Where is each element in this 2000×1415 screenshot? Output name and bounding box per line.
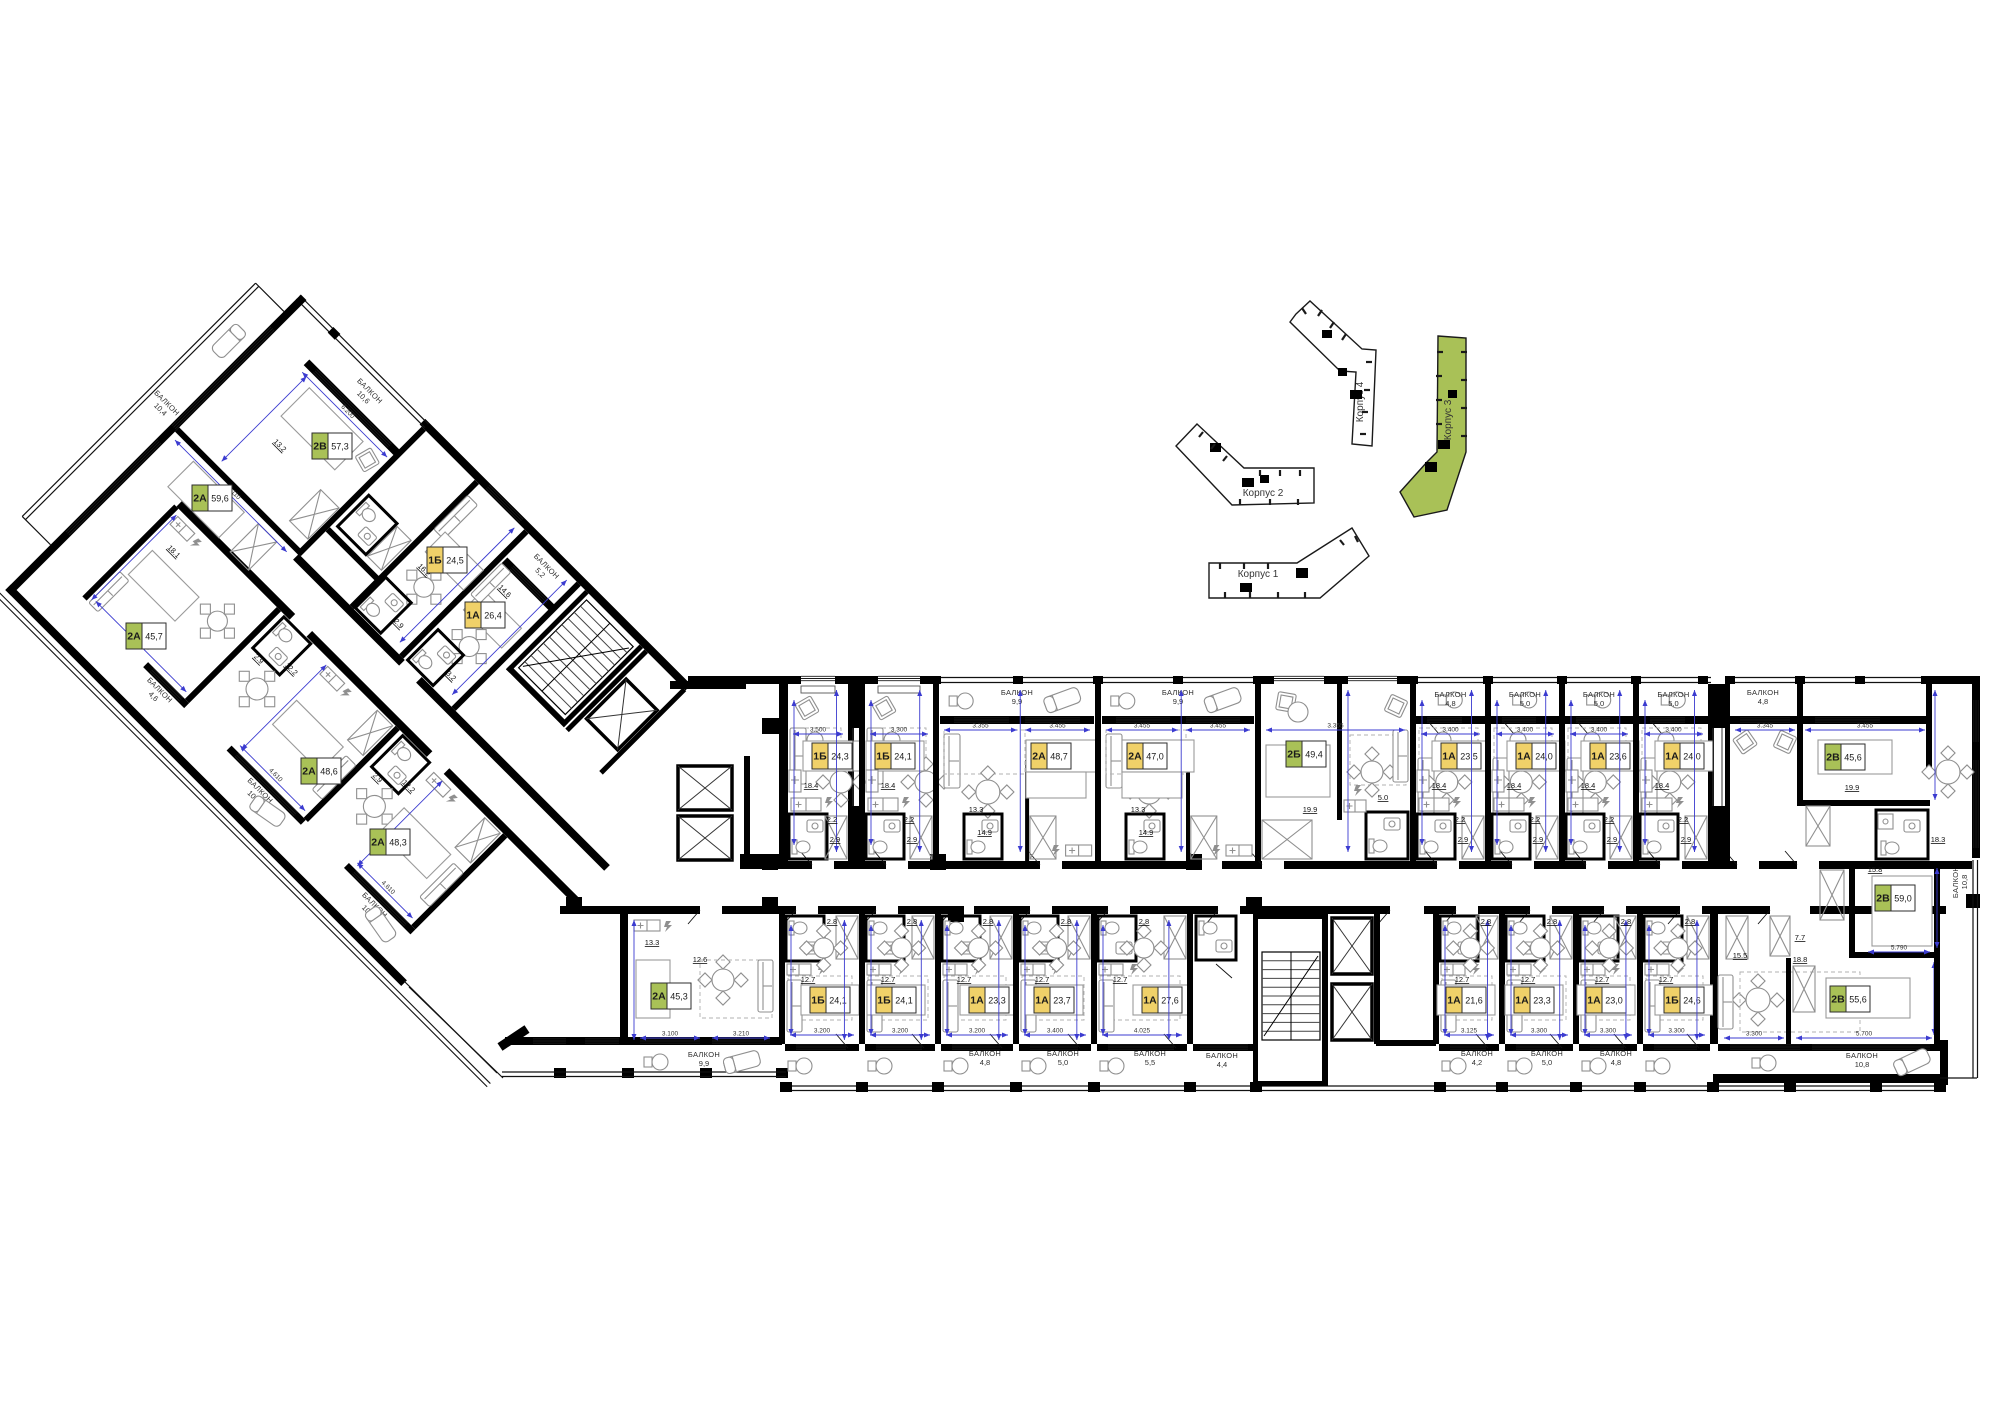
svg-text:БАЛКОН: БАЛКОН xyxy=(1047,1049,1079,1058)
svg-text:12.7: 12.7 xyxy=(1595,975,1610,984)
svg-text:48,6: 48,6 xyxy=(320,767,338,777)
svg-text:1А: 1А xyxy=(1515,995,1529,1007)
svg-text:13.3: 13.3 xyxy=(645,938,660,947)
svg-text:19.9: 19.9 xyxy=(1303,805,1318,814)
svg-text:24,1: 24,1 xyxy=(894,752,912,762)
svg-text:49,4: 49,4 xyxy=(1305,750,1323,760)
svg-text:21,6: 21,6 xyxy=(1465,996,1483,1006)
svg-text:БАЛКОН: БАЛКОН xyxy=(1206,1051,1238,1060)
svg-text:1А: 1А xyxy=(1035,995,1049,1007)
svg-text:БАЛКОН: БАЛКОН xyxy=(1583,690,1615,699)
svg-text:12.6: 12.6 xyxy=(693,955,708,964)
svg-text:5,0: 5,0 xyxy=(1520,699,1530,708)
svg-text:3.210: 3.210 xyxy=(733,1031,750,1038)
svg-text:18.8: 18.8 xyxy=(1793,955,1808,964)
svg-text:3.200: 3.200 xyxy=(892,1028,909,1035)
svg-text:24,0: 24,0 xyxy=(1683,752,1701,762)
svg-text:12.7: 12.7 xyxy=(1521,975,1536,984)
svg-text:2.2: 2.2 xyxy=(1604,815,1614,824)
svg-text:24,5: 24,5 xyxy=(446,556,464,566)
svg-text:2.9: 2.9 xyxy=(1458,835,1468,844)
svg-text:БАЛКОН: БАЛКОН xyxy=(1846,1051,1878,1060)
svg-text:5.700: 5.700 xyxy=(1856,1031,1873,1038)
svg-text:3.455: 3.455 xyxy=(1210,723,1227,730)
svg-text:1А: 1А xyxy=(1591,751,1605,763)
svg-text:БАЛКОН: БАЛКОН xyxy=(1162,688,1194,697)
svg-text:2.9: 2.9 xyxy=(1533,835,1543,844)
svg-text:2.8: 2.8 xyxy=(827,917,837,926)
svg-text:2.9: 2.9 xyxy=(1681,835,1691,844)
svg-text:3.300: 3.300 xyxy=(1600,1028,1617,1035)
svg-text:1А: 1А xyxy=(1442,751,1456,763)
svg-text:23,0: 23,0 xyxy=(1605,996,1623,1006)
svg-text:4,2: 4,2 xyxy=(1472,1058,1482,1067)
svg-text:12.7: 12.7 xyxy=(1035,975,1050,984)
svg-text:2.8: 2.8 xyxy=(1139,917,1149,926)
svg-text:2.8: 2.8 xyxy=(1481,917,1491,926)
svg-text:5,0: 5,0 xyxy=(1058,1058,1068,1067)
svg-text:10,8: 10,8 xyxy=(1960,875,1969,890)
svg-text:БАЛКОН: БАЛКОН xyxy=(1657,690,1689,699)
svg-text:18.4: 18.4 xyxy=(1581,781,1596,790)
svg-text:2.8: 2.8 xyxy=(1061,917,1071,926)
svg-text:2.9: 2.9 xyxy=(907,835,917,844)
svg-text:5,5: 5,5 xyxy=(1145,1058,1155,1067)
svg-text:23,5: 23,5 xyxy=(1460,752,1478,762)
svg-text:2А: 2А xyxy=(652,991,666,1003)
svg-text:1А: 1А xyxy=(970,995,984,1007)
svg-text:1А: 1А xyxy=(1143,995,1157,1007)
svg-text:13.3: 13.3 xyxy=(969,805,984,814)
svg-text:12.7: 12.7 xyxy=(1113,975,1128,984)
svg-text:3.355: 3.355 xyxy=(1327,723,1344,730)
svg-text:4,4: 4,4 xyxy=(1217,1060,1227,1069)
svg-text:48,3: 48,3 xyxy=(389,838,407,848)
svg-text:1Б: 1Б xyxy=(428,555,442,567)
svg-text:4,8: 4,8 xyxy=(1758,697,1768,706)
svg-text:5.0: 5.0 xyxy=(1378,793,1388,802)
svg-text:2.8: 2.8 xyxy=(1547,917,1557,926)
svg-text:2.2: 2.2 xyxy=(827,815,837,824)
svg-text:57,3: 57,3 xyxy=(331,442,349,452)
svg-text:БАЛКОН: БАЛКОН xyxy=(1461,1049,1493,1058)
svg-text:БАЛКОН: БАЛКОН xyxy=(1001,688,1033,697)
svg-text:1Б: 1Б xyxy=(877,995,891,1007)
svg-text:3.300: 3.300 xyxy=(891,727,908,734)
svg-text:18.4: 18.4 xyxy=(1655,781,1670,790)
svg-text:2.8: 2.8 xyxy=(1685,917,1695,926)
svg-text:12.7: 12.7 xyxy=(957,975,972,984)
svg-text:4.025: 4.025 xyxy=(1134,1028,1151,1035)
svg-text:1Б: 1Б xyxy=(1665,995,1679,1007)
svg-text:2Б: 2Б xyxy=(1287,749,1301,761)
svg-text:2В: 2В xyxy=(1876,893,1890,905)
svg-text:47,0: 47,0 xyxy=(1146,752,1164,762)
svg-text:5,0: 5,0 xyxy=(1668,699,1678,708)
svg-text:55,6: 55,6 xyxy=(1849,995,1867,1005)
svg-text:2А: 2А xyxy=(193,493,207,505)
svg-text:4,8: 4,8 xyxy=(980,1058,990,1067)
svg-text:2.9: 2.9 xyxy=(1607,835,1617,844)
svg-text:23,7: 23,7 xyxy=(1053,996,1071,1006)
svg-text:3.455: 3.455 xyxy=(1857,723,1874,730)
svg-text:3.400: 3.400 xyxy=(1665,727,1682,734)
svg-text:59,0: 59,0 xyxy=(1894,894,1912,904)
svg-text:24,6: 24,6 xyxy=(1683,996,1701,1006)
svg-text:5,0: 5,0 xyxy=(1594,699,1604,708)
svg-text:БАЛКОН: БАЛКОН xyxy=(1600,1049,1632,1058)
svg-text:2В: 2В xyxy=(313,441,327,453)
svg-text:1А: 1А xyxy=(1665,751,1679,763)
svg-text:9,9: 9,9 xyxy=(1173,697,1183,706)
svg-text:45,3: 45,3 xyxy=(670,992,688,1002)
svg-text:Корпус 1: Корпус 1 xyxy=(1238,569,1279,580)
svg-text:23,6: 23,6 xyxy=(1609,752,1627,762)
svg-text:2.8: 2.8 xyxy=(907,917,917,926)
svg-text:23,3: 23,3 xyxy=(1533,996,1551,1006)
svg-text:2.9: 2.9 xyxy=(830,835,840,844)
svg-text:Корпус 2: Корпус 2 xyxy=(1243,488,1284,499)
svg-text:2.8: 2.8 xyxy=(983,917,993,926)
svg-text:24,0: 24,0 xyxy=(1535,752,1553,762)
svg-text:45,6: 45,6 xyxy=(1844,753,1862,763)
svg-text:3.200: 3.200 xyxy=(969,1028,986,1035)
svg-text:2.2: 2.2 xyxy=(1530,815,1540,824)
svg-text:12.7: 12.7 xyxy=(801,975,816,984)
svg-text:БАЛКОН: БАЛКОН xyxy=(1747,688,1779,697)
svg-text:45,7: 45,7 xyxy=(145,632,163,642)
svg-text:23,3: 23,3 xyxy=(988,996,1006,1006)
svg-text:1А: 1А xyxy=(1447,995,1461,1007)
svg-text:1А: 1А xyxy=(1517,751,1531,763)
svg-text:2А: 2А xyxy=(1032,751,1046,763)
svg-text:БАЛКОН: БАЛКОН xyxy=(1509,690,1541,699)
svg-text:24,3: 24,3 xyxy=(831,752,849,762)
svg-text:2.2: 2.2 xyxy=(1455,815,1465,824)
svg-text:1Б: 1Б xyxy=(876,751,890,763)
svg-text:3.400: 3.400 xyxy=(1591,727,1608,734)
svg-text:3.100: 3.100 xyxy=(662,1031,679,1038)
svg-text:2.2: 2.2 xyxy=(1678,815,1688,824)
svg-text:19.9: 19.9 xyxy=(1845,783,1860,792)
svg-text:3.400: 3.400 xyxy=(1517,727,1534,734)
svg-text:БАЛКОН: БАЛКОН xyxy=(688,1050,720,1059)
svg-text:3.455: 3.455 xyxy=(1134,723,1151,730)
svg-text:2А: 2А xyxy=(127,631,141,643)
svg-text:9,9: 9,9 xyxy=(699,1059,709,1068)
svg-text:2В: 2В xyxy=(1831,994,1845,1006)
svg-text:15.8: 15.8 xyxy=(1868,865,1883,874)
svg-text:3.300: 3.300 xyxy=(1746,1031,1763,1038)
svg-text:4,8: 4,8 xyxy=(1611,1058,1621,1067)
svg-text:3.300: 3.300 xyxy=(1668,1028,1685,1035)
svg-text:5,0: 5,0 xyxy=(1542,1058,1552,1067)
svg-text:15.5: 15.5 xyxy=(1733,951,1748,960)
svg-text:5.790: 5.790 xyxy=(1891,945,1908,952)
svg-text:7.7: 7.7 xyxy=(1795,933,1805,942)
svg-text:2А: 2А xyxy=(302,766,316,778)
svg-text:12.7: 12.7 xyxy=(1659,975,1674,984)
svg-text:Корпус 3: Корпус 3 xyxy=(1443,399,1454,440)
svg-text:2В: 2В xyxy=(1826,752,1840,764)
svg-text:26,4: 26,4 xyxy=(484,611,502,621)
svg-text:2.2: 2.2 xyxy=(904,815,914,824)
svg-text:БАЛКОН: БАЛКОН xyxy=(1434,690,1466,699)
svg-text:1А: 1А xyxy=(466,610,480,622)
svg-text:13.3: 13.3 xyxy=(1131,805,1146,814)
svg-text:Корпус 4: Корпус 4 xyxy=(1355,381,1366,422)
svg-text:18.4: 18.4 xyxy=(1432,781,1447,790)
svg-text:БАЛКОН: БАЛКОН xyxy=(1531,1049,1563,1058)
svg-text:БАЛКОН: БАЛКОН xyxy=(1134,1049,1166,1058)
svg-text:27,6: 27,6 xyxy=(1161,996,1179,1006)
svg-text:3.200: 3.200 xyxy=(814,1028,831,1035)
svg-text:12.7: 12.7 xyxy=(881,975,896,984)
svg-text:1Б: 1Б xyxy=(811,995,825,1007)
svg-text:59,6: 59,6 xyxy=(211,494,229,504)
svg-text:3.345: 3.345 xyxy=(1757,723,1774,730)
svg-text:14.9: 14.9 xyxy=(977,828,992,837)
svg-text:БАЛКОН: БАЛКОН xyxy=(1951,866,1960,898)
svg-text:1А: 1А xyxy=(1587,995,1601,1007)
svg-text:3.400: 3.400 xyxy=(1442,727,1459,734)
svg-text:24,1: 24,1 xyxy=(895,996,913,1006)
svg-text:1Б: 1Б xyxy=(813,751,827,763)
svg-text:2А: 2А xyxy=(371,837,385,849)
svg-text:4,8: 4,8 xyxy=(1445,699,1455,708)
svg-text:18.4: 18.4 xyxy=(804,781,819,790)
svg-text:18.3: 18.3 xyxy=(1931,835,1946,844)
svg-text:14.9: 14.9 xyxy=(1139,828,1154,837)
svg-text:48,7: 48,7 xyxy=(1050,752,1068,762)
svg-text:2.8: 2.8 xyxy=(1621,917,1631,926)
svg-text:10,8: 10,8 xyxy=(1855,1060,1870,1069)
svg-text:18.4: 18.4 xyxy=(881,781,896,790)
svg-text:3.455: 3.455 xyxy=(1049,723,1066,730)
svg-text:12.7: 12.7 xyxy=(1455,975,1470,984)
svg-text:3.400: 3.400 xyxy=(1047,1028,1064,1035)
svg-text:18.4: 18.4 xyxy=(1507,781,1522,790)
svg-text:2А: 2А xyxy=(1128,751,1142,763)
svg-text:БАЛКОН: БАЛКОН xyxy=(969,1049,1001,1058)
svg-text:3.500: 3.500 xyxy=(810,727,827,734)
svg-text:3.355: 3.355 xyxy=(972,723,989,730)
svg-text:3.125: 3.125 xyxy=(1461,1028,1478,1035)
svg-text:3.300: 3.300 xyxy=(1531,1028,1548,1035)
